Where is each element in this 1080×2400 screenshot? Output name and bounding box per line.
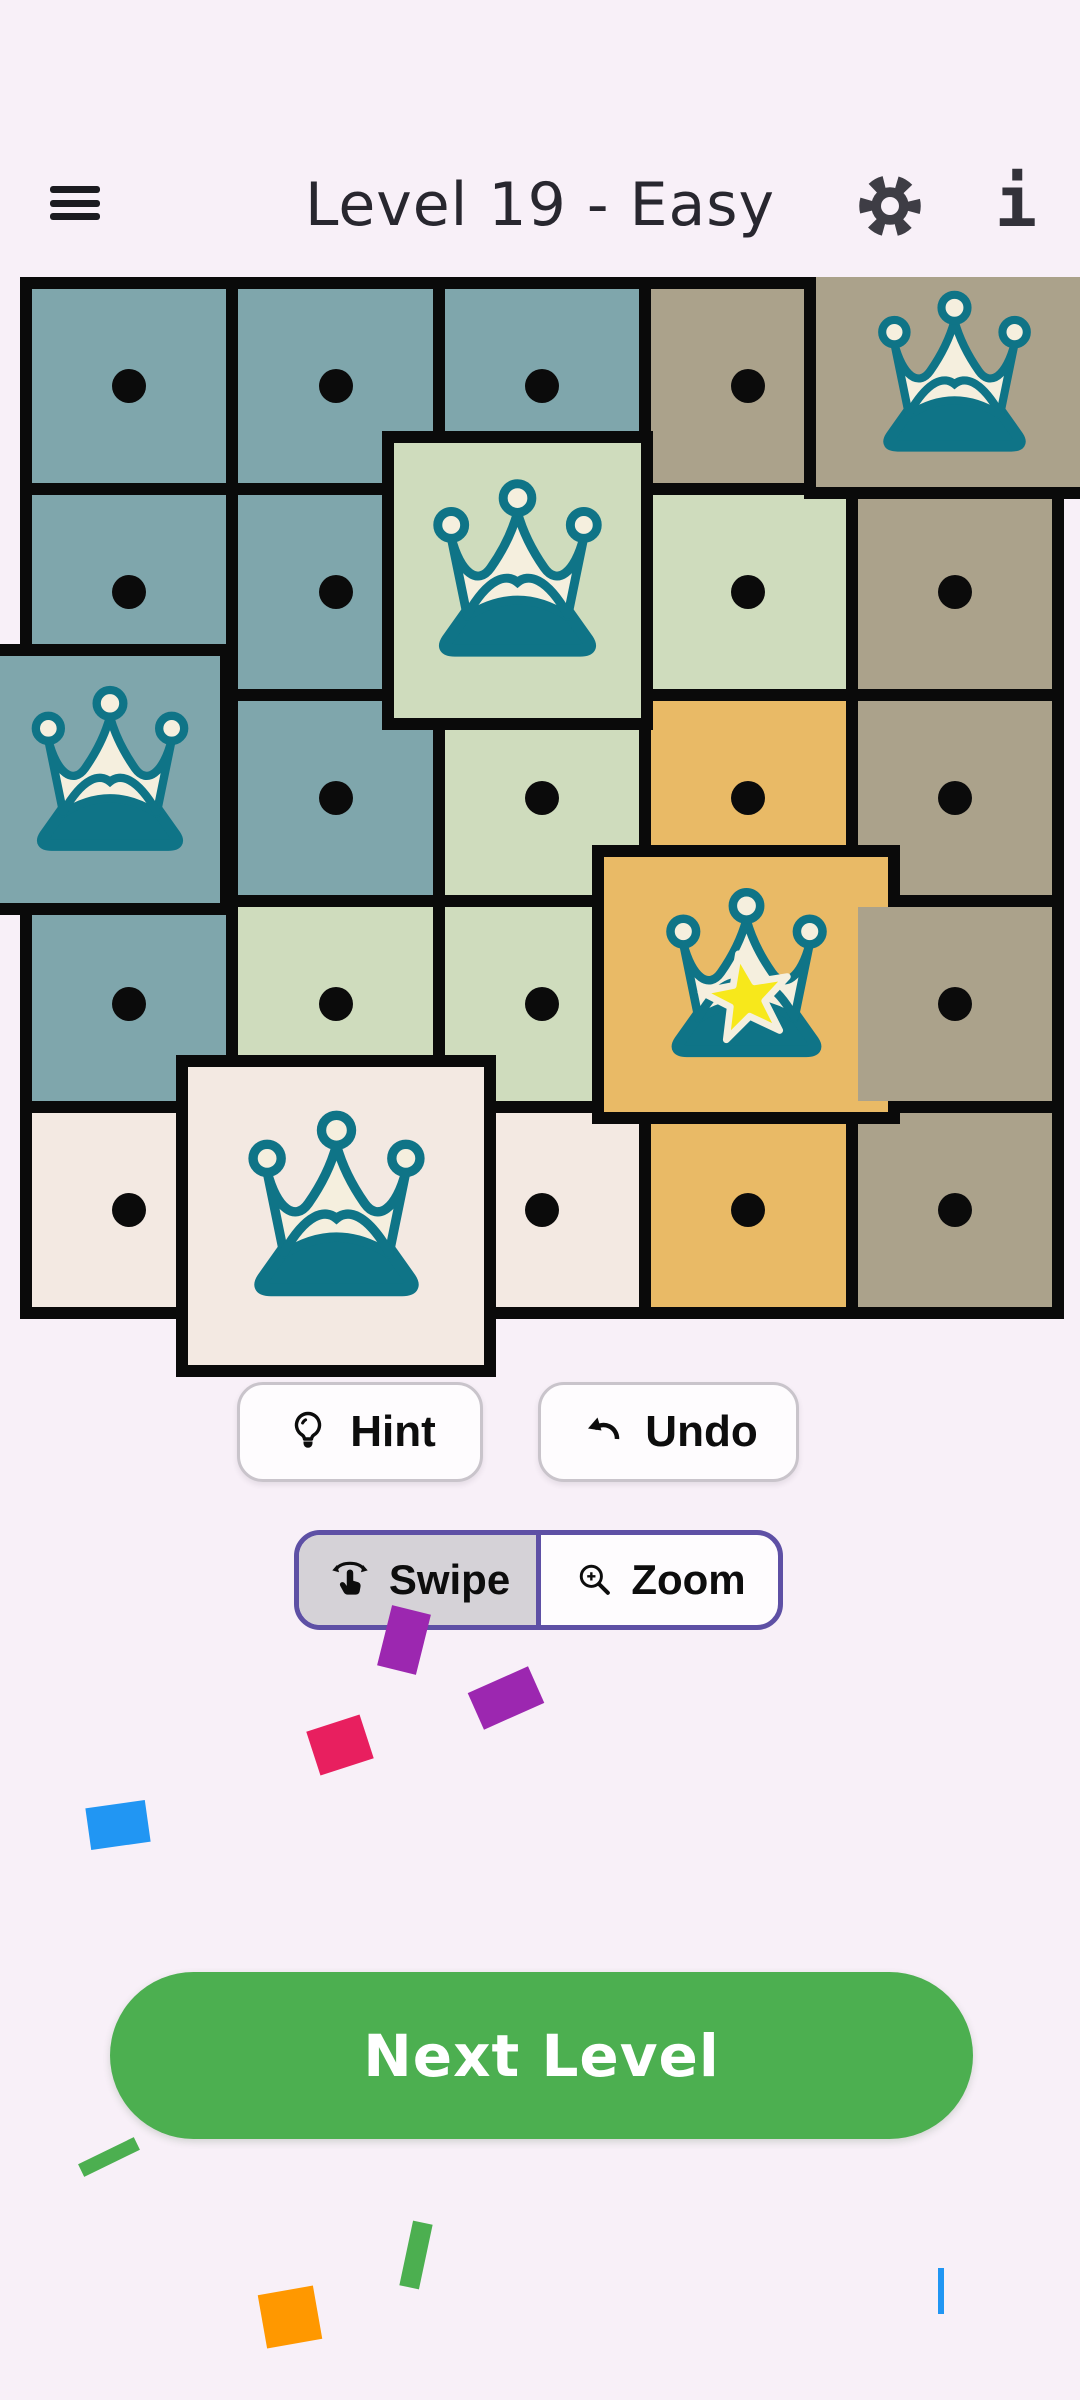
info-button[interactable]: i xyxy=(978,162,1054,242)
cell-dot-icon xyxy=(319,369,353,403)
cell-dot-icon xyxy=(731,781,765,815)
swipe-label: Swipe xyxy=(389,1556,510,1604)
board-cell-r2c5-taupe[interactable] xyxy=(858,495,1052,689)
undo-arrow-icon xyxy=(579,1408,627,1456)
crown-tile-taupe[interactable] xyxy=(804,277,1080,499)
cell-dot-icon xyxy=(112,575,146,609)
confetti-piece xyxy=(938,2268,944,2314)
magnifier-plus-icon xyxy=(573,1558,617,1602)
crown-tile-green[interactable] xyxy=(382,431,653,730)
cell-dot-icon xyxy=(525,781,559,815)
gear-icon xyxy=(854,170,926,242)
cell-dot-icon xyxy=(112,369,146,403)
swipe-gesture-icon xyxy=(325,1555,375,1605)
undo-button[interactable]: Undo xyxy=(538,1382,799,1482)
crown-tile-blue[interactable] xyxy=(0,644,232,915)
undo-label: Undo xyxy=(645,1407,757,1457)
cell-dot-icon xyxy=(731,575,765,609)
cell-dot-icon xyxy=(525,1193,559,1227)
crown-tile-orange[interactable] xyxy=(592,845,900,1124)
hint-button[interactable]: Hint xyxy=(237,1382,483,1482)
settings-button[interactable] xyxy=(852,168,928,244)
board-cell-r5c4-orange[interactable] xyxy=(651,1113,845,1307)
next-level-label: Next Level xyxy=(363,2022,720,2090)
cell-dot-icon xyxy=(731,1193,765,1227)
board-cell-r1c1-blue[interactable] xyxy=(32,289,226,483)
cell-dot-icon xyxy=(319,987,353,1021)
puzzle-board[interactable] xyxy=(20,277,1064,1319)
crown-mountain-icon xyxy=(410,473,625,688)
confetti-piece xyxy=(258,2286,323,2349)
confetti-piece xyxy=(399,2221,432,2290)
cell-dot-icon xyxy=(319,575,353,609)
next-level-button[interactable]: Next Level xyxy=(110,1972,973,2139)
cell-dot-icon xyxy=(938,781,972,815)
crown-mountain-icon xyxy=(10,680,210,880)
confetti-piece xyxy=(306,1714,373,1775)
cell-dot-icon xyxy=(112,1193,146,1227)
cell-dot-icon xyxy=(319,781,353,815)
mode-toggle: Swipe Zoom xyxy=(294,1530,783,1630)
board-cell-r3c2-blue[interactable] xyxy=(238,701,432,895)
cell-dot-icon xyxy=(112,987,146,1021)
cell-dot-icon xyxy=(731,369,765,403)
zoom-mode-tab[interactable]: Zoom xyxy=(536,1535,778,1625)
lightbulb-icon xyxy=(284,1408,332,1456)
board-cell-r4c5-taupe[interactable] xyxy=(858,907,1052,1101)
crown-mountain-icon xyxy=(857,285,1052,480)
board-cell-r5c5-taupe[interactable] xyxy=(858,1113,1052,1307)
crown-mountain-icon xyxy=(644,882,849,1087)
cell-dot-icon xyxy=(938,987,972,1021)
cell-dot-icon xyxy=(938,575,972,609)
cell-dot-icon xyxy=(938,1193,972,1227)
cell-dot-icon xyxy=(525,987,559,1021)
app-header: Level 19 - Easy i xyxy=(0,0,1080,270)
confetti-piece xyxy=(85,1800,150,1850)
cell-dot-icon xyxy=(525,369,559,403)
crown-mountain-icon xyxy=(224,1104,449,1329)
info-icon: i xyxy=(995,161,1037,243)
board-cell-r2c4-green[interactable] xyxy=(651,495,845,689)
hint-label: Hint xyxy=(350,1407,436,1457)
crown-tile-cream[interactable] xyxy=(176,1055,496,1377)
confetti-piece xyxy=(468,1666,545,1729)
confetti-piece xyxy=(78,2137,140,2177)
zoom-label: Zoom xyxy=(631,1556,745,1604)
